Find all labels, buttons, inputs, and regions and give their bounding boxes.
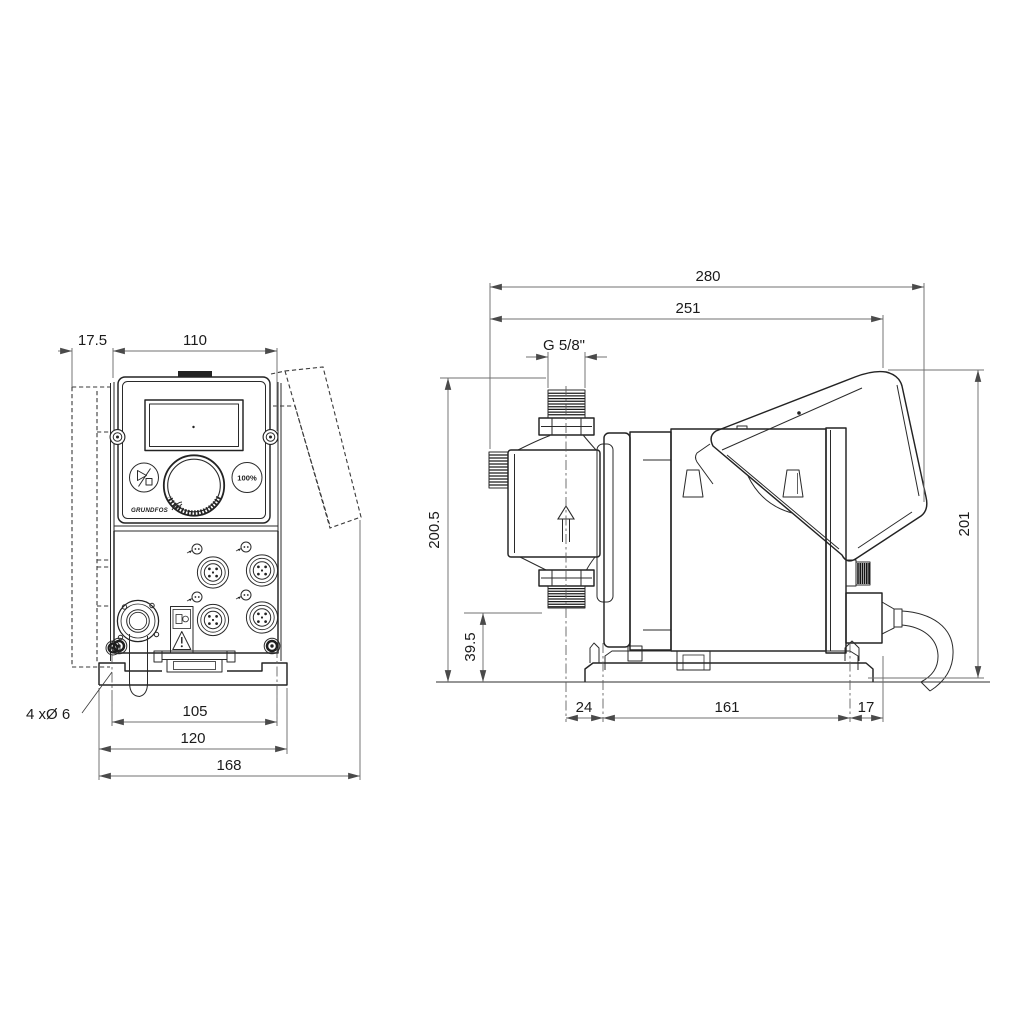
dim-total-height: 200.5 <box>426 511 443 549</box>
cable-gland-flange <box>117 600 158 641</box>
rear-port <box>846 560 870 586</box>
dim-connection-thread: G 5/8" <box>543 337 585 354</box>
tilted-control-panel <box>696 372 927 561</box>
suction-valve <box>539 570 594 608</box>
front-view: 100% GRUNDFOS <box>26 332 361 780</box>
base-hook-left <box>590 643 599 663</box>
dim-overall-width: 168 <box>216 757 241 774</box>
socket-icon-2 <box>236 542 251 552</box>
plug-icon <box>176 615 188 624</box>
dim-base-width: 120 <box>180 730 205 747</box>
clamp-tab-right <box>783 470 803 497</box>
start-stop-icon <box>138 469 153 487</box>
connector-socket-3[interactable] <box>197 604 228 635</box>
start-stop-button[interactable] <box>130 463 159 492</box>
socket-icon-1 <box>187 544 202 554</box>
dim-rear-hole-offset: 17 <box>858 699 875 716</box>
discharge-valve <box>518 390 596 450</box>
corner-screw-right <box>264 638 280 654</box>
vent-valve-knob <box>489 452 508 488</box>
base-plate-front <box>99 663 287 685</box>
clamp-tab-left <box>683 470 703 497</box>
bottom-left-screw <box>106 641 120 655</box>
dim-panel-width: 110 <box>183 332 207 349</box>
mounting-holes-note: 4 xØ 6 <box>26 706 70 723</box>
wall-mounting-plate <box>72 387 110 667</box>
socket-icon-4 <box>236 590 251 600</box>
mounting-rail <box>154 651 235 672</box>
logo-text: GRUNDFOS <box>131 507 169 514</box>
click-wheel[interactable] <box>164 455 224 515</box>
dim-hole-spacing: 105 <box>182 703 207 720</box>
power-cable-side <box>902 611 953 691</box>
control-panel: 100% GRUNDFOS <box>110 371 278 523</box>
dim-front-hole-offset: 24 <box>576 699 593 716</box>
display <box>145 400 243 451</box>
dim-hole-spacing-depth: 161 <box>714 699 739 716</box>
base-plate-side <box>585 641 873 682</box>
front-dimensions: 17.5 110 105 120 168 4 xØ 6 <box>26 332 360 780</box>
backplate <box>604 433 630 647</box>
drawing-page: 100% GRUNDFOS <box>0 0 1024 1024</box>
cable-gland-side <box>846 593 902 643</box>
connector-socket-2[interactable] <box>246 555 277 586</box>
hidden-pump-body <box>271 367 361 528</box>
leader-line <box>82 672 112 713</box>
dim-offset-depth: 17.5 <box>78 332 107 349</box>
connector-socket-1[interactable] <box>197 557 228 588</box>
motor-housing <box>671 426 846 653</box>
pump-body-sides <box>111 383 282 661</box>
warning-label <box>171 607 194 654</box>
capacity-button-label: 100% <box>237 474 257 483</box>
power-cable-front <box>130 634 148 697</box>
pump-head <box>508 450 600 570</box>
mid-housing <box>630 432 671 650</box>
side-view: 280 251 G 5/8" 200.5 39.5 24 161 17 201 <box>426 268 990 722</box>
capacity-button[interactable]: 100% <box>232 463 262 493</box>
side-dimensions: 280 251 G 5/8" 200.5 39.5 24 161 17 201 <box>426 268 984 722</box>
socket-icon-3 <box>187 592 202 602</box>
panel-bracket <box>696 444 714 484</box>
dim-valve-height: 39.5 <box>462 632 479 661</box>
base-foot <box>677 651 710 670</box>
dimensional-drawing: 100% GRUNDFOS <box>0 0 1024 1024</box>
dim-body-depth: 251 <box>675 300 700 317</box>
dim-overall-depth: 280 <box>695 268 720 285</box>
connector-socket-4[interactable] <box>246 602 277 633</box>
dim-body-height: 201 <box>956 511 973 536</box>
warning-triangle-icon <box>173 632 191 650</box>
